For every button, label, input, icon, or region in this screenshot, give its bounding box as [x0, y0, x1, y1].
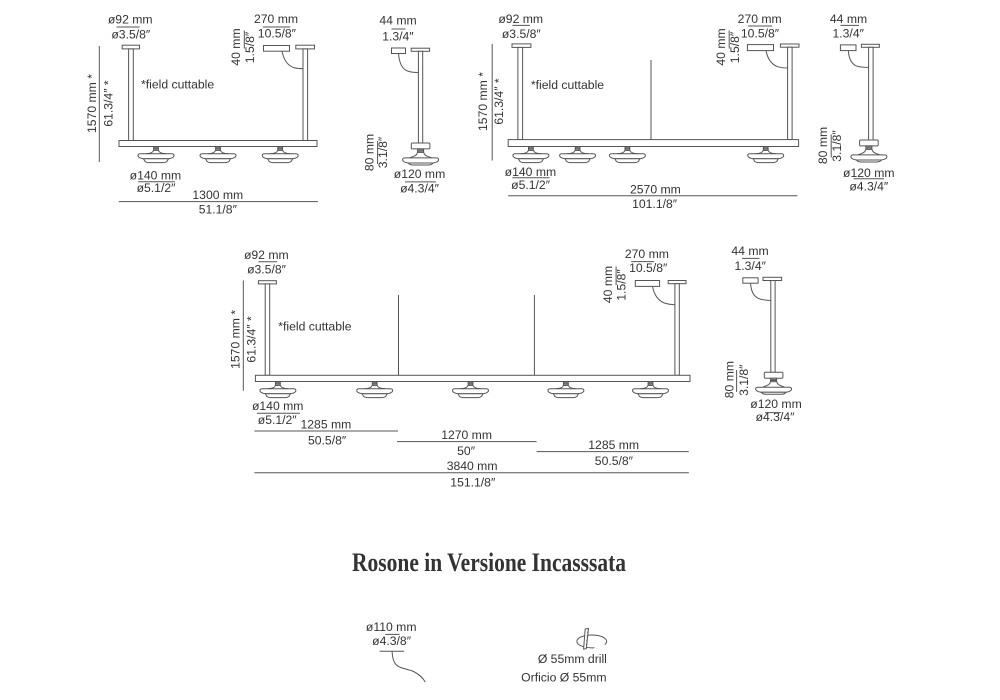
svg-text:1.5/8″: 1.5/8″: [728, 31, 742, 63]
svg-text:80 mm: 80 mm: [723, 361, 737, 398]
svg-text:1285 mm: 1285 mm: [588, 438, 639, 452]
svg-text:3.1/8″: 3.1/8″: [737, 364, 751, 396]
svg-text:51.1/8″: 51.1/8″: [199, 203, 238, 217]
svg-text:ø5.1/2″: ø5.1/2″: [511, 178, 551, 192]
svg-text:1270 mm: 1270 mm: [441, 428, 492, 442]
svg-text:Orficio Ø 55mm: Orficio Ø 55mm: [521, 671, 606, 685]
svg-text:*field cuttable: *field cuttable: [278, 320, 351, 334]
svg-text:151.1/8″: 151.1/8″: [450, 475, 496, 489]
svg-text:40 mm: 40 mm: [601, 266, 615, 303]
svg-text:1.3/4″: 1.3/4″: [734, 259, 766, 273]
svg-text:ø92 mm: ø92 mm: [108, 13, 153, 27]
svg-text:*field cuttable: *field cuttable: [141, 78, 214, 92]
svg-text:44 mm: 44 mm: [379, 14, 416, 28]
svg-text:50.5/8″: 50.5/8″: [308, 434, 347, 448]
svg-text:3840 mm: 3840 mm: [447, 459, 498, 473]
svg-text:80 mm: 80 mm: [816, 127, 830, 164]
svg-text:61.3/4″ *: 61.3/4″ *: [244, 316, 258, 363]
svg-text:ø3.5/8″: ø3.5/8″: [111, 28, 151, 42]
svg-text:1.5/8″: 1.5/8″: [243, 31, 257, 63]
svg-text:ø4.3/4″: ø4.3/4″: [756, 410, 796, 424]
svg-text:ø5.1/2″: ø5.1/2″: [258, 413, 298, 427]
svg-text:ø120 mm: ø120 mm: [843, 166, 894, 180]
svg-text:2570 mm: 2570 mm: [630, 182, 681, 196]
svg-text:ø3.5/8″: ø3.5/8″: [247, 263, 287, 277]
svg-text:1300 mm: 1300 mm: [192, 188, 243, 202]
svg-text:3.1/8″: 3.1/8″: [376, 136, 390, 168]
svg-text:Rosone in Versione Incasssata: Rosone in Versione Incasssata: [352, 548, 626, 577]
svg-text:80 mm: 80 mm: [362, 134, 376, 171]
svg-text:1.5/8″: 1.5/8″: [615, 269, 629, 301]
svg-text:ø4.3/4″: ø4.3/4″: [849, 180, 889, 194]
svg-text:1570 mm *: 1570 mm *: [476, 72, 490, 131]
svg-text:1.3/4″: 1.3/4″: [382, 30, 414, 44]
svg-text:*field cuttable: *field cuttable: [531, 78, 604, 92]
svg-text:ø140 mm: ø140 mm: [252, 399, 303, 413]
svg-text:10.5/8″: 10.5/8″: [741, 27, 780, 41]
svg-text:1570 mm *: 1570 mm *: [85, 74, 99, 133]
svg-text:40 mm: 40 mm: [229, 28, 243, 65]
svg-text:ø5.1/2″: ø5.1/2″: [137, 181, 177, 195]
svg-text:50″: 50″: [457, 444, 476, 458]
svg-text:3.1/8″: 3.1/8″: [830, 130, 844, 162]
svg-text:ø120 mm: ø120 mm: [750, 397, 801, 411]
svg-text:ø4.3/8″: ø4.3/8″: [372, 634, 412, 648]
svg-text:44 mm: 44 mm: [731, 244, 768, 258]
svg-text:ø110 mm: ø110 mm: [366, 620, 417, 634]
svg-text:270 mm: 270 mm: [738, 12, 782, 26]
svg-text:50.5/8″: 50.5/8″: [595, 454, 634, 468]
svg-text:61.3/4″ *: 61.3/4″ *: [102, 80, 116, 127]
svg-text:10.5/8″: 10.5/8″: [258, 27, 297, 41]
svg-text:61.3/4″ *: 61.3/4″ *: [492, 78, 506, 125]
svg-text:1570 mm *: 1570 mm *: [229, 310, 243, 369]
svg-text:10.5/8″: 10.5/8″: [629, 261, 668, 275]
svg-text:ø3.5/8″: ø3.5/8″: [502, 27, 542, 41]
svg-text:270 mm: 270 mm: [625, 247, 669, 261]
svg-text:Ø 55mm drill: Ø 55mm drill: [538, 652, 607, 666]
svg-text:ø120 mm: ø120 mm: [394, 167, 445, 181]
svg-text:270 mm: 270 mm: [254, 12, 298, 26]
svg-text:40 mm: 40 mm: [714, 28, 728, 65]
svg-text:44 mm: 44 mm: [830, 12, 867, 26]
svg-text:ø92 mm: ø92 mm: [244, 248, 289, 262]
svg-text:1285 mm: 1285 mm: [300, 418, 351, 432]
svg-text:ø92 mm: ø92 mm: [498, 12, 543, 26]
svg-text:ø4.3/4″: ø4.3/4″: [400, 182, 440, 196]
svg-text:1.3/4″: 1.3/4″: [832, 27, 864, 41]
svg-text:101.1/8″: 101.1/8″: [632, 197, 678, 211]
